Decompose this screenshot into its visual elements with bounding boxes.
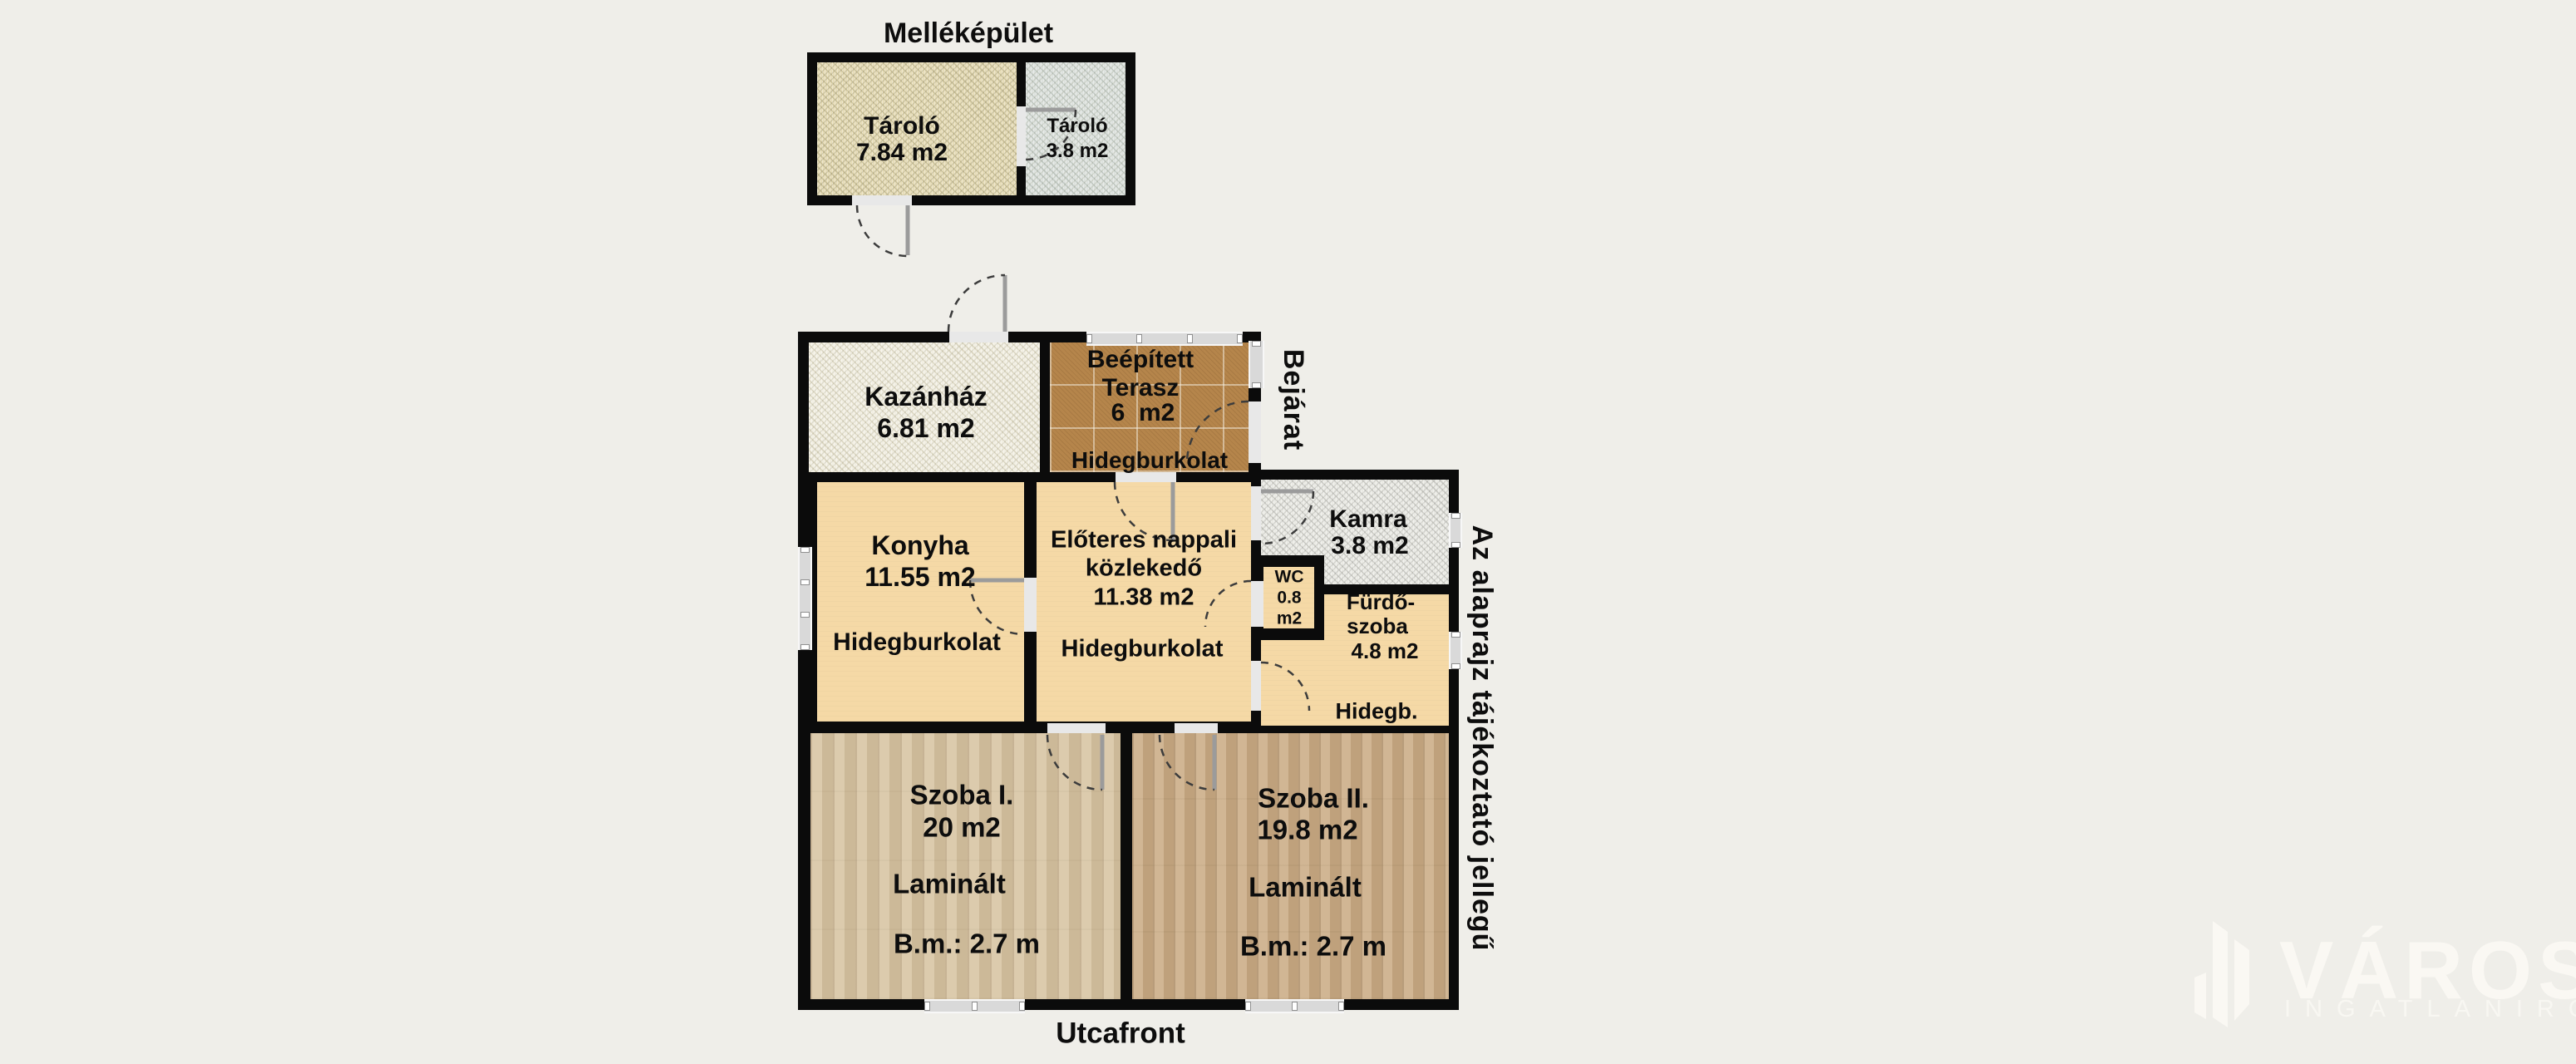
nappali-name-line2: közlekedő [1086, 557, 1202, 581]
tarolo-small-name: Tároló [1047, 116, 1107, 136]
door-opening-terasz-nappali [1116, 472, 1176, 482]
szoba1-flooring: Laminált [893, 870, 1006, 898]
floorplan-canvas: Melléképület Tároló 7.84 m2 Tároló 3.8 m… [0, 0, 2576, 1064]
szoba2-flooring: Laminált [1249, 874, 1362, 901]
street-label: Utcafront [1056, 1019, 1185, 1048]
szoba2-name: Szoba II. [1258, 785, 1369, 812]
door-opening-outbuilding [852, 195, 912, 205]
terasz-flooring: Hidegburkolat [1071, 449, 1228, 472]
outbuilding-title: Melléképület [884, 19, 1053, 47]
furdoszoba-area: 4.8 m2 [1352, 640, 1419, 662]
kamra-name: Kamra [1329, 507, 1406, 532]
window-szoba1-bottom [924, 999, 1025, 1013]
tarolo-small-area: 3.8 m2 [1047, 141, 1109, 161]
window-konyha-left [798, 547, 812, 650]
szoba2-area: 19.8 m2 [1257, 816, 1357, 844]
kazanhaz-name: Kazánház [864, 383, 988, 410]
wc-area-unit: m2 [1277, 610, 1302, 628]
entrance-label: Bejárat [1279, 349, 1308, 451]
kamra-area: 3.8 m2 [1331, 534, 1408, 559]
window-terasz-top [1086, 332, 1243, 346]
door-opening-tarolo-divider [1017, 106, 1026, 166]
door-opening-bejarat [1249, 401, 1261, 463]
szoba1-area: 20 m2 [923, 814, 1001, 841]
window-terasz-right [1249, 341, 1264, 388]
window-szoba2-bottom [1245, 999, 1344, 1013]
door-opening-wc [1251, 581, 1263, 627]
room-szoba1 [810, 733, 1121, 999]
furdoszoba-name-line1: Fürdő- [1347, 591, 1415, 613]
door-opening-kamra [1251, 486, 1261, 540]
door-opening-szoba1 [1047, 723, 1106, 733]
nappali-area: 11.38 m2 [1094, 586, 1194, 610]
konyha-name: Konyha [871, 532, 968, 559]
tarolo-large-area: 7.84 m2 [856, 140, 948, 165]
szoba1-ceiling-height: B.m.: 2.7 m [894, 930, 1040, 958]
terasz-name-line2: Terasz [1102, 376, 1180, 401]
szoba1-name: Szoba I. [910, 781, 1014, 809]
watermark-logo-icon [2194, 921, 2269, 1033]
konyha-area: 11.55 m2 [864, 564, 975, 590]
room-konyha [817, 482, 1024, 722]
furdoszoba-flooring: Hidegb. [1336, 701, 1418, 723]
door-opening-kazanhaz [949, 332, 1008, 342]
nappali-name-line1: Előteres nappali [1051, 529, 1237, 553]
disclaimer-label: Az alaprajz tájékoztató jellegű [1468, 525, 1496, 952]
door-arc-kazanhaz [948, 275, 1005, 332]
terasz-area: 6 m2 [1111, 401, 1175, 426]
furdoszoba-name-line2: szoba [1347, 615, 1408, 637]
wc-area-value: 0.8 [1277, 589, 1301, 607]
watermark-subtitle: INGATLANIRODA [2284, 997, 2576, 1022]
door-opening-konyha [1024, 578, 1037, 632]
szoba2-ceiling-height: B.m.: 2.7 m [1240, 933, 1387, 960]
kazanhaz-area: 6.81 m2 [877, 415, 974, 441]
wc-name: WC [1275, 569, 1304, 586]
door-arc-outbuilding [857, 205, 908, 256]
window-kamra-right [1449, 513, 1462, 548]
window-furdoszoba-right [1449, 632, 1462, 669]
konyha-flooring: Hidegburkolat [833, 630, 1001, 655]
door-opening-furdoszoba [1251, 661, 1261, 711]
terasz-name-line1: Beépített [1087, 347, 1194, 372]
door-opening-szoba2 [1175, 723, 1218, 733]
tarolo-large-name: Tároló [864, 114, 940, 139]
nappali-flooring: Hidegburkolat [1061, 638, 1224, 662]
